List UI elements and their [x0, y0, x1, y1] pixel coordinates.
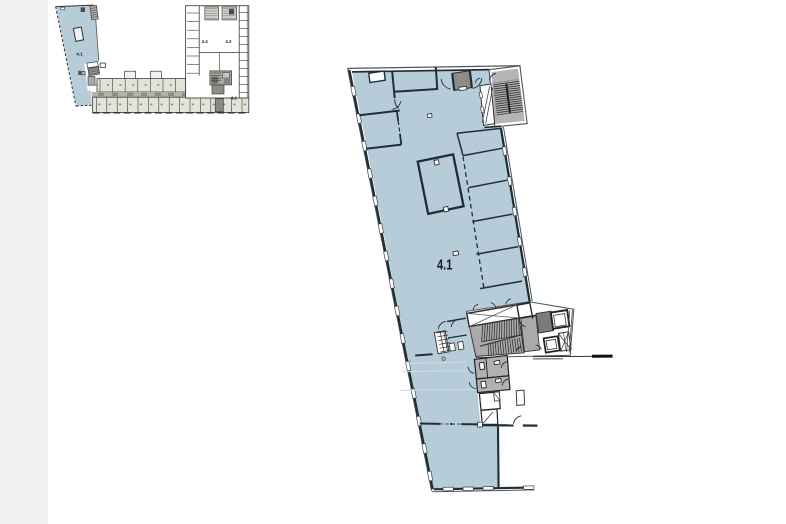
svg-text:4.3: 4.3 — [225, 39, 232, 44]
svg-text:4.1: 4.1 — [76, 52, 83, 57]
svg-text:4.4: 4.4 — [202, 39, 209, 44]
svg-text:4.2: 4.2 — [231, 95, 238, 100]
svg-text:4.1: 4.1 — [437, 257, 452, 273]
